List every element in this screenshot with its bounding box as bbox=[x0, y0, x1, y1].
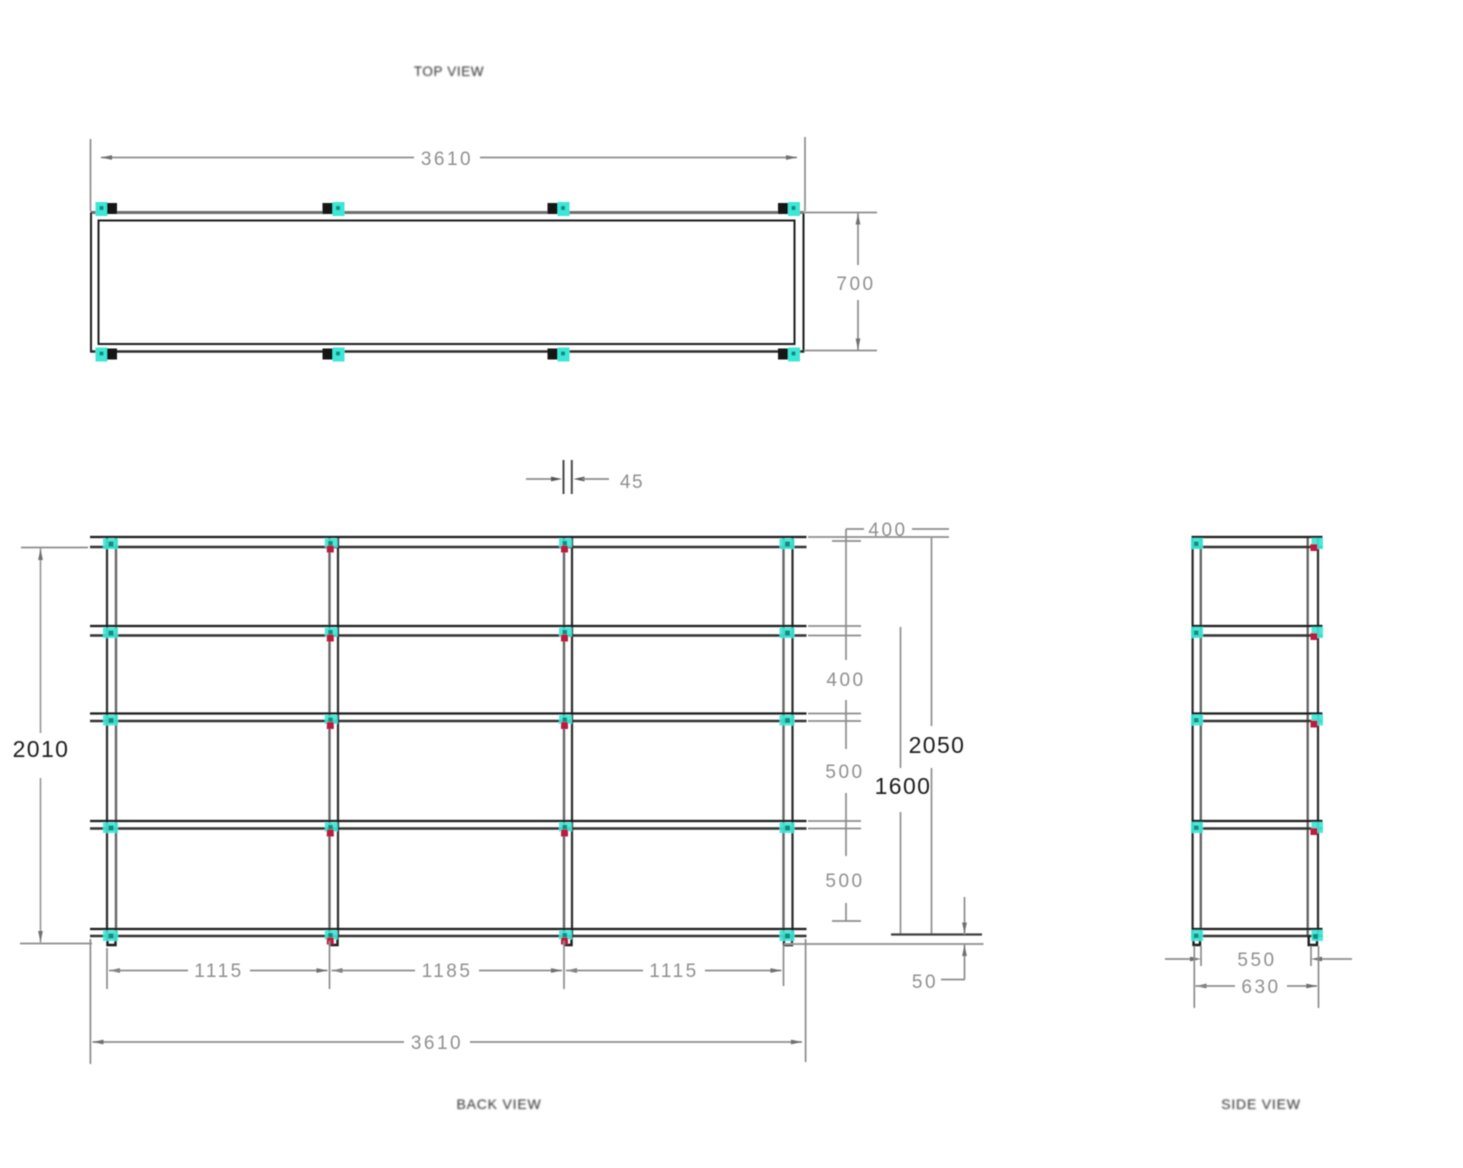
svg-text:SIDE VIEW: SIDE VIEW bbox=[1221, 1096, 1301, 1112]
svg-text:1115: 1115 bbox=[194, 961, 243, 982]
svg-text:500: 500 bbox=[825, 762, 864, 783]
svg-text:2010: 2010 bbox=[13, 736, 70, 762]
svg-text:1115: 1115 bbox=[649, 961, 698, 982]
svg-text:550: 550 bbox=[1237, 950, 1276, 971]
svg-text:3610: 3610 bbox=[411, 1033, 463, 1054]
svg-text:50: 50 bbox=[912, 972, 938, 993]
svg-text:500: 500 bbox=[825, 871, 864, 892]
svg-text:TOP VIEW: TOP VIEW bbox=[414, 64, 484, 79]
svg-text:45: 45 bbox=[620, 472, 644, 493]
svg-text:700: 700 bbox=[836, 274, 875, 295]
svg-text:1185: 1185 bbox=[422, 961, 473, 982]
svg-text:1600: 1600 bbox=[875, 773, 932, 799]
svg-text:3610: 3610 bbox=[421, 149, 473, 170]
svg-text:400: 400 bbox=[868, 520, 907, 541]
svg-text:BACK VIEW: BACK VIEW bbox=[457, 1096, 542, 1112]
svg-text:630: 630 bbox=[1241, 977, 1280, 998]
svg-text:2050: 2050 bbox=[909, 732, 966, 758]
svg-text:400: 400 bbox=[826, 670, 865, 691]
